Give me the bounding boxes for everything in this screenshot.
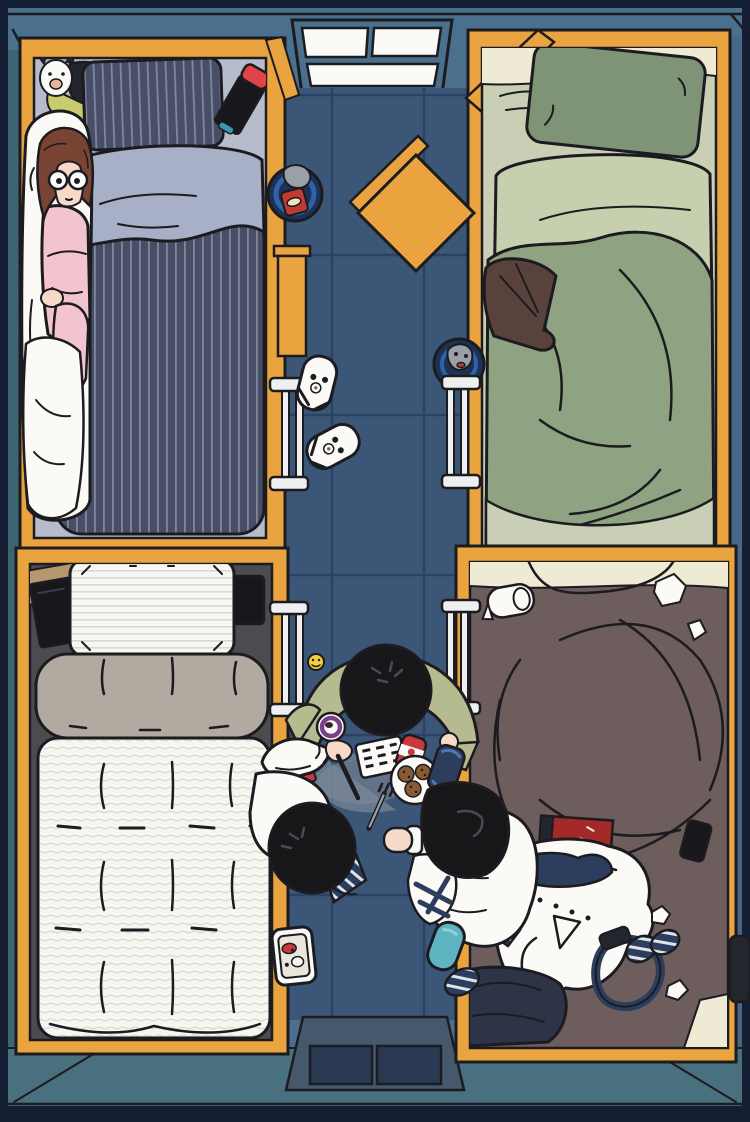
scene-canvas bbox=[0, 0, 750, 1122]
mouth bbox=[66, 199, 72, 200]
purple-cup bbox=[317, 713, 345, 741]
dorm-room-illustration bbox=[0, 0, 750, 1122]
window-pane-bottom bbox=[307, 64, 438, 86]
black-bag bbox=[730, 936, 750, 1002]
bento-tray bbox=[271, 926, 317, 986]
trash-bin-with-chips bbox=[268, 165, 322, 221]
striped-pillow bbox=[70, 560, 234, 656]
head bbox=[341, 645, 431, 735]
pillow bbox=[525, 41, 707, 158]
sheet-strip bbox=[470, 562, 728, 588]
bed-top-left bbox=[20, 37, 299, 552]
window-pane-top-right bbox=[372, 28, 441, 56]
hand-on-floor bbox=[384, 828, 412, 852]
bed-top-right bbox=[466, 30, 730, 566]
head bbox=[422, 783, 509, 878]
sleeping-girl bbox=[22, 111, 93, 520]
head bbox=[269, 803, 355, 893]
window-pane-top-left bbox=[302, 28, 368, 57]
bed-bottom-left bbox=[16, 548, 288, 1054]
phone bbox=[232, 576, 264, 624]
smiley-ball bbox=[308, 654, 324, 670]
side-shelf bbox=[274, 246, 310, 356]
entry-mat-left bbox=[310, 1046, 372, 1084]
entry-mat-right bbox=[377, 1046, 441, 1084]
striped-pillow bbox=[83, 58, 224, 151]
bin-content-gray bbox=[284, 165, 311, 188]
quilted-duvet bbox=[38, 738, 270, 1038]
white-blanket bbox=[23, 338, 83, 519]
window bbox=[292, 20, 452, 94]
